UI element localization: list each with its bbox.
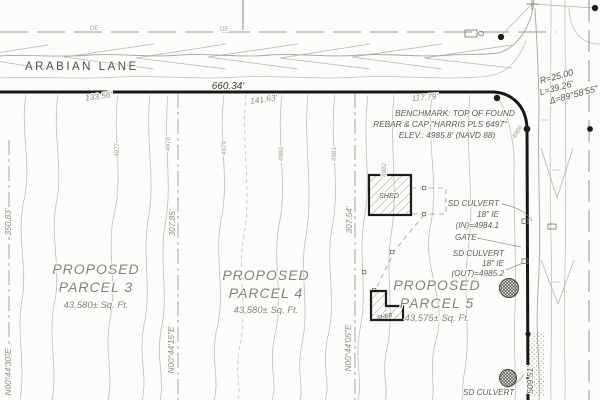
segment-dim-3: 117.79' <box>411 91 439 103</box>
culvert-south-label: SD CULVERT <box>463 388 515 397</box>
west-line-dim: 350.83' <box>3 208 13 235</box>
svg-text:PARCEL 5: PARCEL 5 <box>400 295 474 311</box>
svg-text:SD CULVERT: SD CULVERT <box>453 249 505 258</box>
culvert-out-note: SD CULVERT 18" IE (OUT)=4985.2 <box>451 249 505 278</box>
east-road <box>529 0 600 400</box>
contour-lines <box>20 95 516 400</box>
svg-text:4982: 4982 <box>381 162 388 177</box>
east-road-line-3 <box>564 0 566 400</box>
utility-pole-symbol <box>465 30 477 37</box>
oe-label-2: OE <box>220 27 229 33</box>
svg-text:PROPOSED: PROPOSED <box>222 267 309 283</box>
shed-large-label: SHED <box>379 191 399 200</box>
tree-symbols <box>500 279 519 387</box>
parcel-3-label: PROPOSED PARCEL 3 43,580± Sq. Ft. <box>52 261 139 311</box>
svg-text:PARCEL 3: PARCEL 3 <box>59 279 133 295</box>
road-north-edge <box>0 0 534 56</box>
svg-text:PROPOSED: PROPOSED <box>52 261 139 277</box>
lot-line-45-bearing: N00°44'05"E <box>343 324 353 372</box>
parcel-4-label: PROPOSED PARCEL 4 43,580± Sq. Ft. <box>222 267 309 316</box>
benchmark-line-2: REBAR & CAP "HARRIS PLS 6497" <box>373 119 508 129</box>
svg-text:4980: 4980 <box>278 146 285 161</box>
north-boundary-dim: 660.34' <box>212 81 246 92</box>
svg-text:4977: 4977 <box>114 142 121 157</box>
monument-dot <box>524 126 531 133</box>
survey-plat-drawing: SHED SHED ARABIAN LANE OE <box>0 0 600 400</box>
inlet-symbol <box>548 224 556 229</box>
svg-text:18" IE: 18" IE <box>482 259 505 268</box>
west-line-bearing: N00°44'30"E <box>3 348 13 396</box>
svg-text:4986: 4986 <box>511 124 525 140</box>
svg-text:18" IE: 18" IE <box>477 210 500 219</box>
benchmark-line-3: ELEV.: 4985.8' (NAVD 88) <box>399 130 496 140</box>
svg-text:4981: 4981 <box>331 146 338 161</box>
road-name-label: ARABIAN LANE <box>25 61 139 73</box>
svg-text:4978: 4978 <box>165 136 172 151</box>
monument-dot <box>498 34 504 40</box>
benchmark-note: BENCHMARK: TOP OF FOUND REBAR & CAP "HAR… <box>373 108 515 140</box>
monuments <box>465 0 598 337</box>
segment-dim-2: 141.63' <box>250 92 279 106</box>
monument-dot <box>587 126 593 132</box>
gate-label: GATE <box>455 233 477 242</box>
svg-text:(IN)=4984.1: (IN)=4984.1 <box>456 221 499 230</box>
lot-line-34-bearing: N00°44'15"E <box>166 326 176 374</box>
lot-line-34-dim: 307.85' <box>167 209 177 236</box>
oe-label-1: OE <box>90 26 99 32</box>
east-curb-return <box>569 8 600 44</box>
parcel-5-label: PROPOSED PARCEL 5 43,575± Sq. Ft. <box>393 277 480 324</box>
east-line-dim: 509.51' <box>525 366 535 394</box>
shed-small: SHED <box>371 291 403 321</box>
culvert-in-note: SD CULVERT 18" IE (IN)=4984.1 <box>448 199 500 230</box>
svg-text:PARCEL 4: PARCEL 4 <box>229 285 303 301</box>
monument-dot <box>494 95 500 101</box>
lot-lines <box>9 93 355 400</box>
parcel-5-area: 43,575± Sq. Ft. <box>405 313 470 324</box>
svg-text:(OUT)=4985.2: (OUT)=4985.2 <box>451 269 504 278</box>
parcel-3-area: 43,580± Sq. Ft. <box>64 300 129 311</box>
text-labels: ARABIAN LANE OE OE 660.34' 133.56' 141.6… <box>3 26 600 397</box>
shed-large: SHED <box>369 175 411 215</box>
curve-data-block: R=25.00 L=39.26' Δ=89°58'55" <box>536 62 600 108</box>
parcel-4-area: 43,580± Sq. Ft. <box>234 305 299 316</box>
monument-dot <box>592 5 598 11</box>
monument-dot <box>525 331 530 336</box>
plat-canvas: SHED SHED ARABIAN LANE OE <box>0 0 600 400</box>
svg-text:4979: 4979 <box>221 140 228 155</box>
benchmark-line-1: BENCHMARK: TOP OF FOUND <box>395 108 515 118</box>
east-road-line-2 <box>550 0 552 400</box>
svg-text:SD CULVERT: SD CULVERT <box>448 199 500 208</box>
svg-text:PROPOSED: PROPOSED <box>393 277 480 293</box>
lot-line-45-dim: 307.54' <box>344 206 354 233</box>
